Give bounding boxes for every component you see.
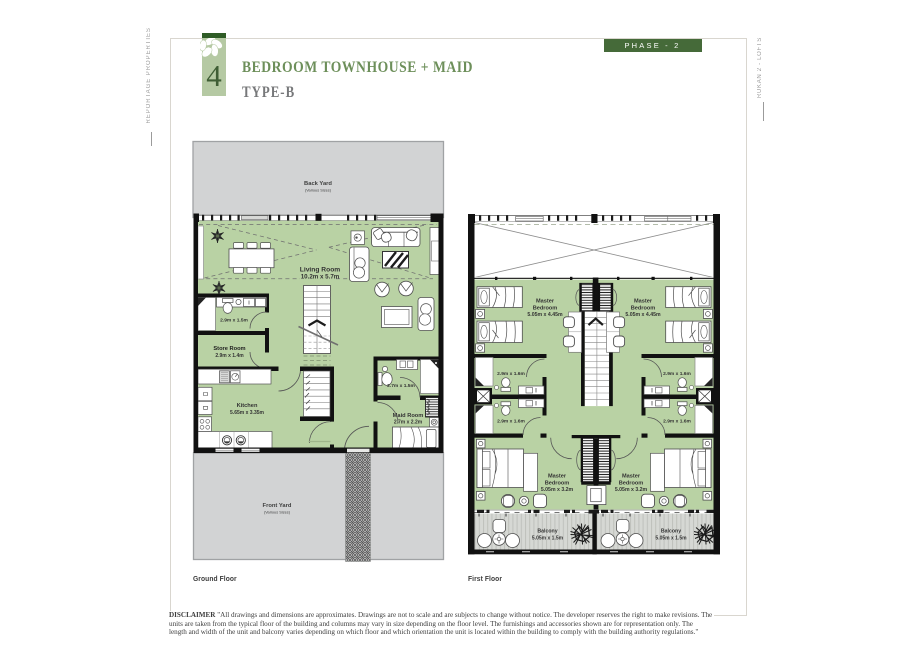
svg-text:2.9m x 1.4m: 2.9m x 1.4m xyxy=(215,353,244,359)
svg-text:5.05m x 1.5m: 5.05m x 1.5m xyxy=(655,536,687,542)
svg-text:Kitchen: Kitchen xyxy=(237,403,258,409)
svg-text:2.9m x 1.6m: 2.9m x 1.6m xyxy=(663,419,691,425)
svg-text:5.05m x 3.2m: 5.05m x 3.2m xyxy=(615,487,648,493)
svg-text:Balcony: Balcony xyxy=(661,529,681,535)
svg-text:Master: Master xyxy=(536,299,555,305)
svg-text:Bedroom: Bedroom xyxy=(533,305,558,311)
svg-text:Master: Master xyxy=(548,474,567,480)
svg-text:Balcony: Balcony xyxy=(537,529,557,535)
svg-text:(Various Sizes): (Various Sizes) xyxy=(305,188,332,193)
svg-text:Bedroom: Bedroom xyxy=(619,480,644,486)
svg-text:Master: Master xyxy=(634,299,653,305)
svg-text:(Various Sizes): (Various Sizes) xyxy=(264,510,291,515)
svg-text:2.9m x 1.6m: 2.9m x 1.6m xyxy=(663,371,691,377)
svg-text:Master: Master xyxy=(622,474,641,480)
svg-text:Bedroom: Bedroom xyxy=(545,480,570,486)
svg-text:Back Yard: Back Yard xyxy=(304,181,332,187)
svg-text:Store Room: Store Room xyxy=(213,346,245,352)
svg-text:2.9m x 1.6m: 2.9m x 1.6m xyxy=(497,419,525,425)
svg-text:2.9m x 1.6m: 2.9m x 1.6m xyxy=(497,371,525,377)
svg-text:Bedroom: Bedroom xyxy=(631,305,656,311)
svg-text:5.65m x 3.35m: 5.65m x 3.35m xyxy=(230,410,264,416)
svg-text:5.05m x 1.5m: 5.05m x 1.5m xyxy=(532,536,564,542)
svg-text:5.05m x 3.2m: 5.05m x 3.2m xyxy=(541,487,574,493)
svg-text:5.05m x 4.45m: 5.05m x 4.45m xyxy=(625,312,661,318)
svg-text:2.7m x 1.5m: 2.7m x 1.5m xyxy=(387,383,415,389)
svg-text:10.2m x 5.7m: 10.2m x 5.7m xyxy=(301,273,340,280)
svg-text:Front Yard: Front Yard xyxy=(263,503,292,509)
svg-text:2.9m x 1.5m: 2.9m x 1.5m xyxy=(220,318,248,324)
svg-text:5.05m x 4.45m: 5.05m x 4.45m xyxy=(527,312,563,318)
